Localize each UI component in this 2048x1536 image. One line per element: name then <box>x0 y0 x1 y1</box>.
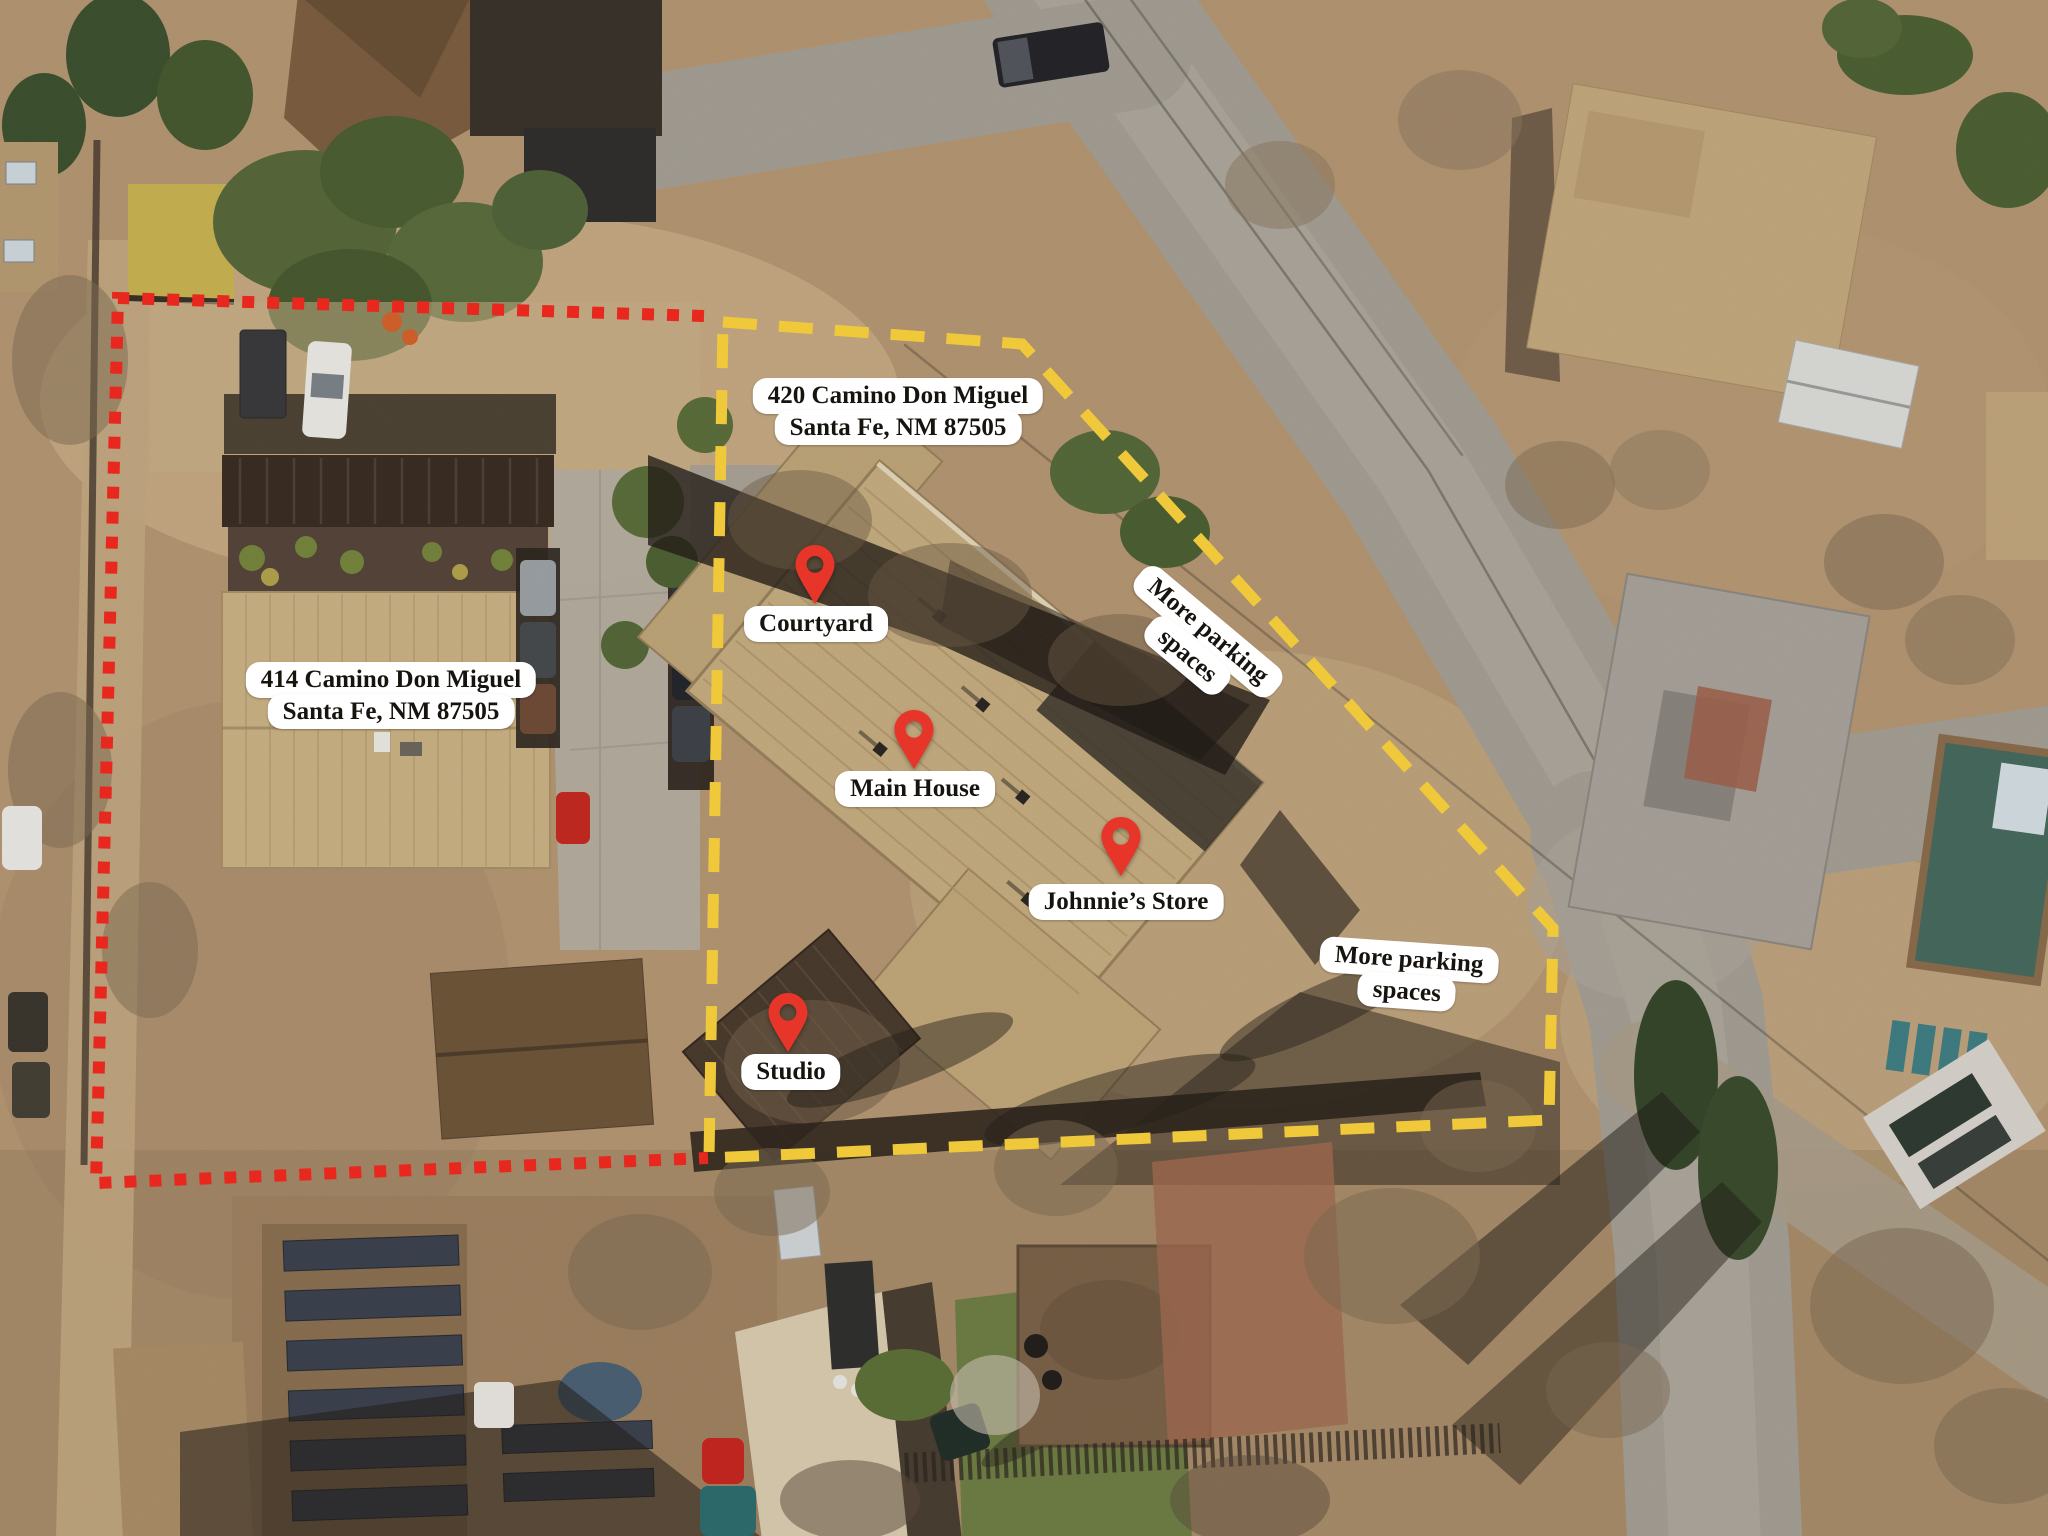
main-house-label-text: Main House <box>835 771 995 807</box>
aerial-photo-background <box>0 0 2048 1536</box>
pin-label-main-house: Main House <box>835 771 995 807</box>
pin-label-johnnies-store: Johnnie’s Store <box>1029 884 1224 920</box>
address-label-414: 414 Camino Don Miguel Santa Fe, NM 87505 <box>246 662 536 729</box>
johnnies-store-label-text: Johnnie’s Store <box>1029 884 1224 920</box>
map-pin-johnnies-store <box>1099 816 1143 878</box>
studio-label-text: Studio <box>741 1054 840 1090</box>
address-414-line2: Santa Fe, NM 87505 <box>268 694 515 730</box>
courtyard-label-text: Courtyard <box>744 606 888 642</box>
parking-label-southeast: More parking spaces <box>1316 936 1499 1015</box>
map-pin-studio <box>766 992 810 1054</box>
map-pin-main-house <box>892 709 936 771</box>
photo-grain <box>0 0 2048 1536</box>
pin-label-studio: Studio <box>741 1054 840 1090</box>
address-label-420: 420 Camino Don Miguel Santa Fe, NM 87505 <box>753 378 1043 445</box>
parking-se-line2: spaces <box>1357 970 1457 1012</box>
address-414-line1: 414 Camino Don Miguel <box>246 662 536 698</box>
property-aerial-map: 420 Camino Don Miguel Santa Fe, NM 87505… <box>0 0 2048 1536</box>
map-pin-courtyard <box>793 544 837 606</box>
address-420-line2: Santa Fe, NM 87505 <box>775 410 1022 446</box>
address-420-line1: 420 Camino Don Miguel <box>753 378 1043 414</box>
pin-label-courtyard: Courtyard <box>744 606 888 642</box>
